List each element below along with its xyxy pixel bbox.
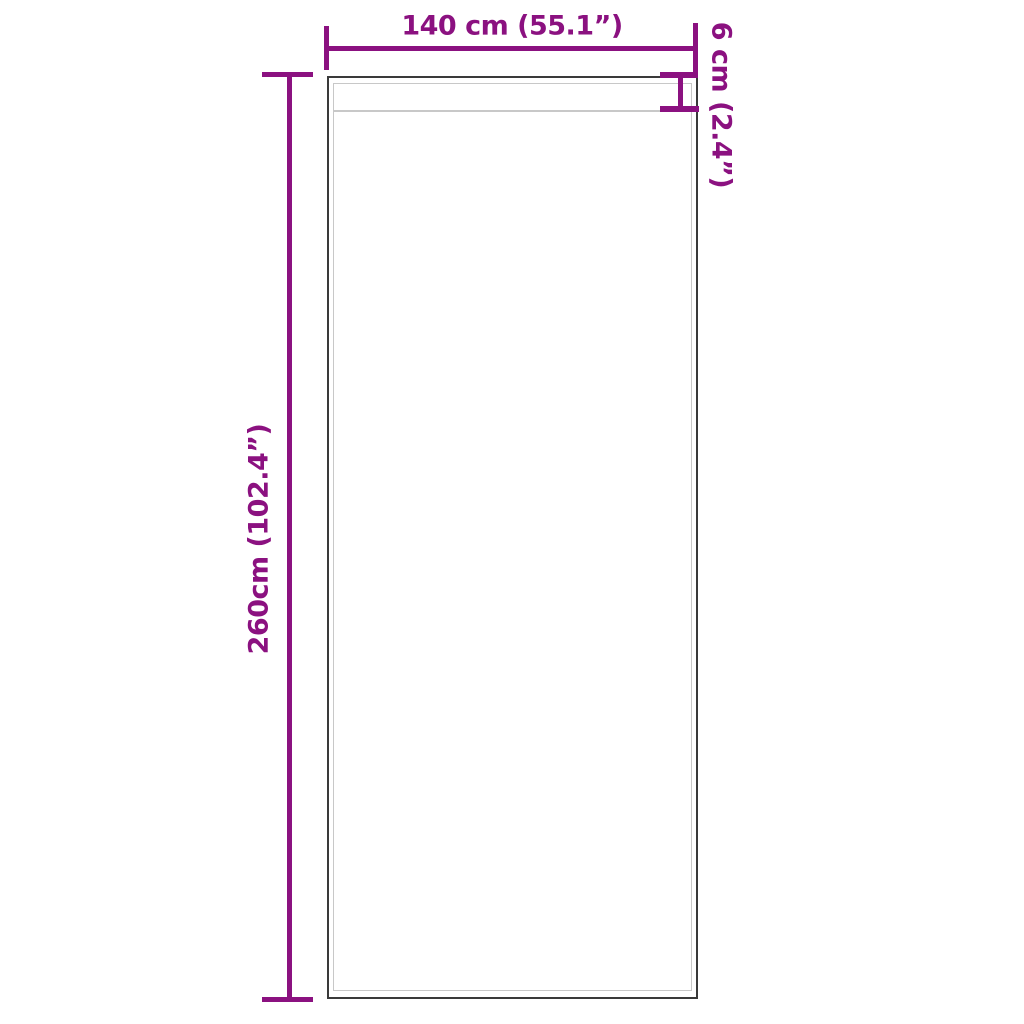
height-dimension-label: 260cm (102.4”) (244, 424, 275, 655)
pocket-dimension-bracket-line (678, 75, 683, 109)
rod-pocket-seam-line (334, 110, 691, 112)
width-dimension-line (327, 46, 698, 51)
pocket-dimension-bottom-tick (660, 106, 699, 112)
panel-inner-outline (333, 83, 692, 991)
height-dimension-bottom-tick (262, 997, 313, 1002)
pocket-dimension-top-tick (660, 72, 698, 78)
height-dimension-top-tick (262, 72, 313, 77)
height-dimension-line (287, 75, 292, 1002)
pocket-dimension-label: 6 cm (2.4”) (706, 22, 737, 188)
width-dimension-label: 140 cm (55.1”) (401, 11, 622, 42)
width-dimension-left-tick (324, 26, 329, 70)
dimension-diagram: 140 cm (55.1”) 260cm (102.4”) 6 cm (2.4”… (0, 0, 1024, 1024)
width-dimension-right-tick (693, 23, 698, 72)
